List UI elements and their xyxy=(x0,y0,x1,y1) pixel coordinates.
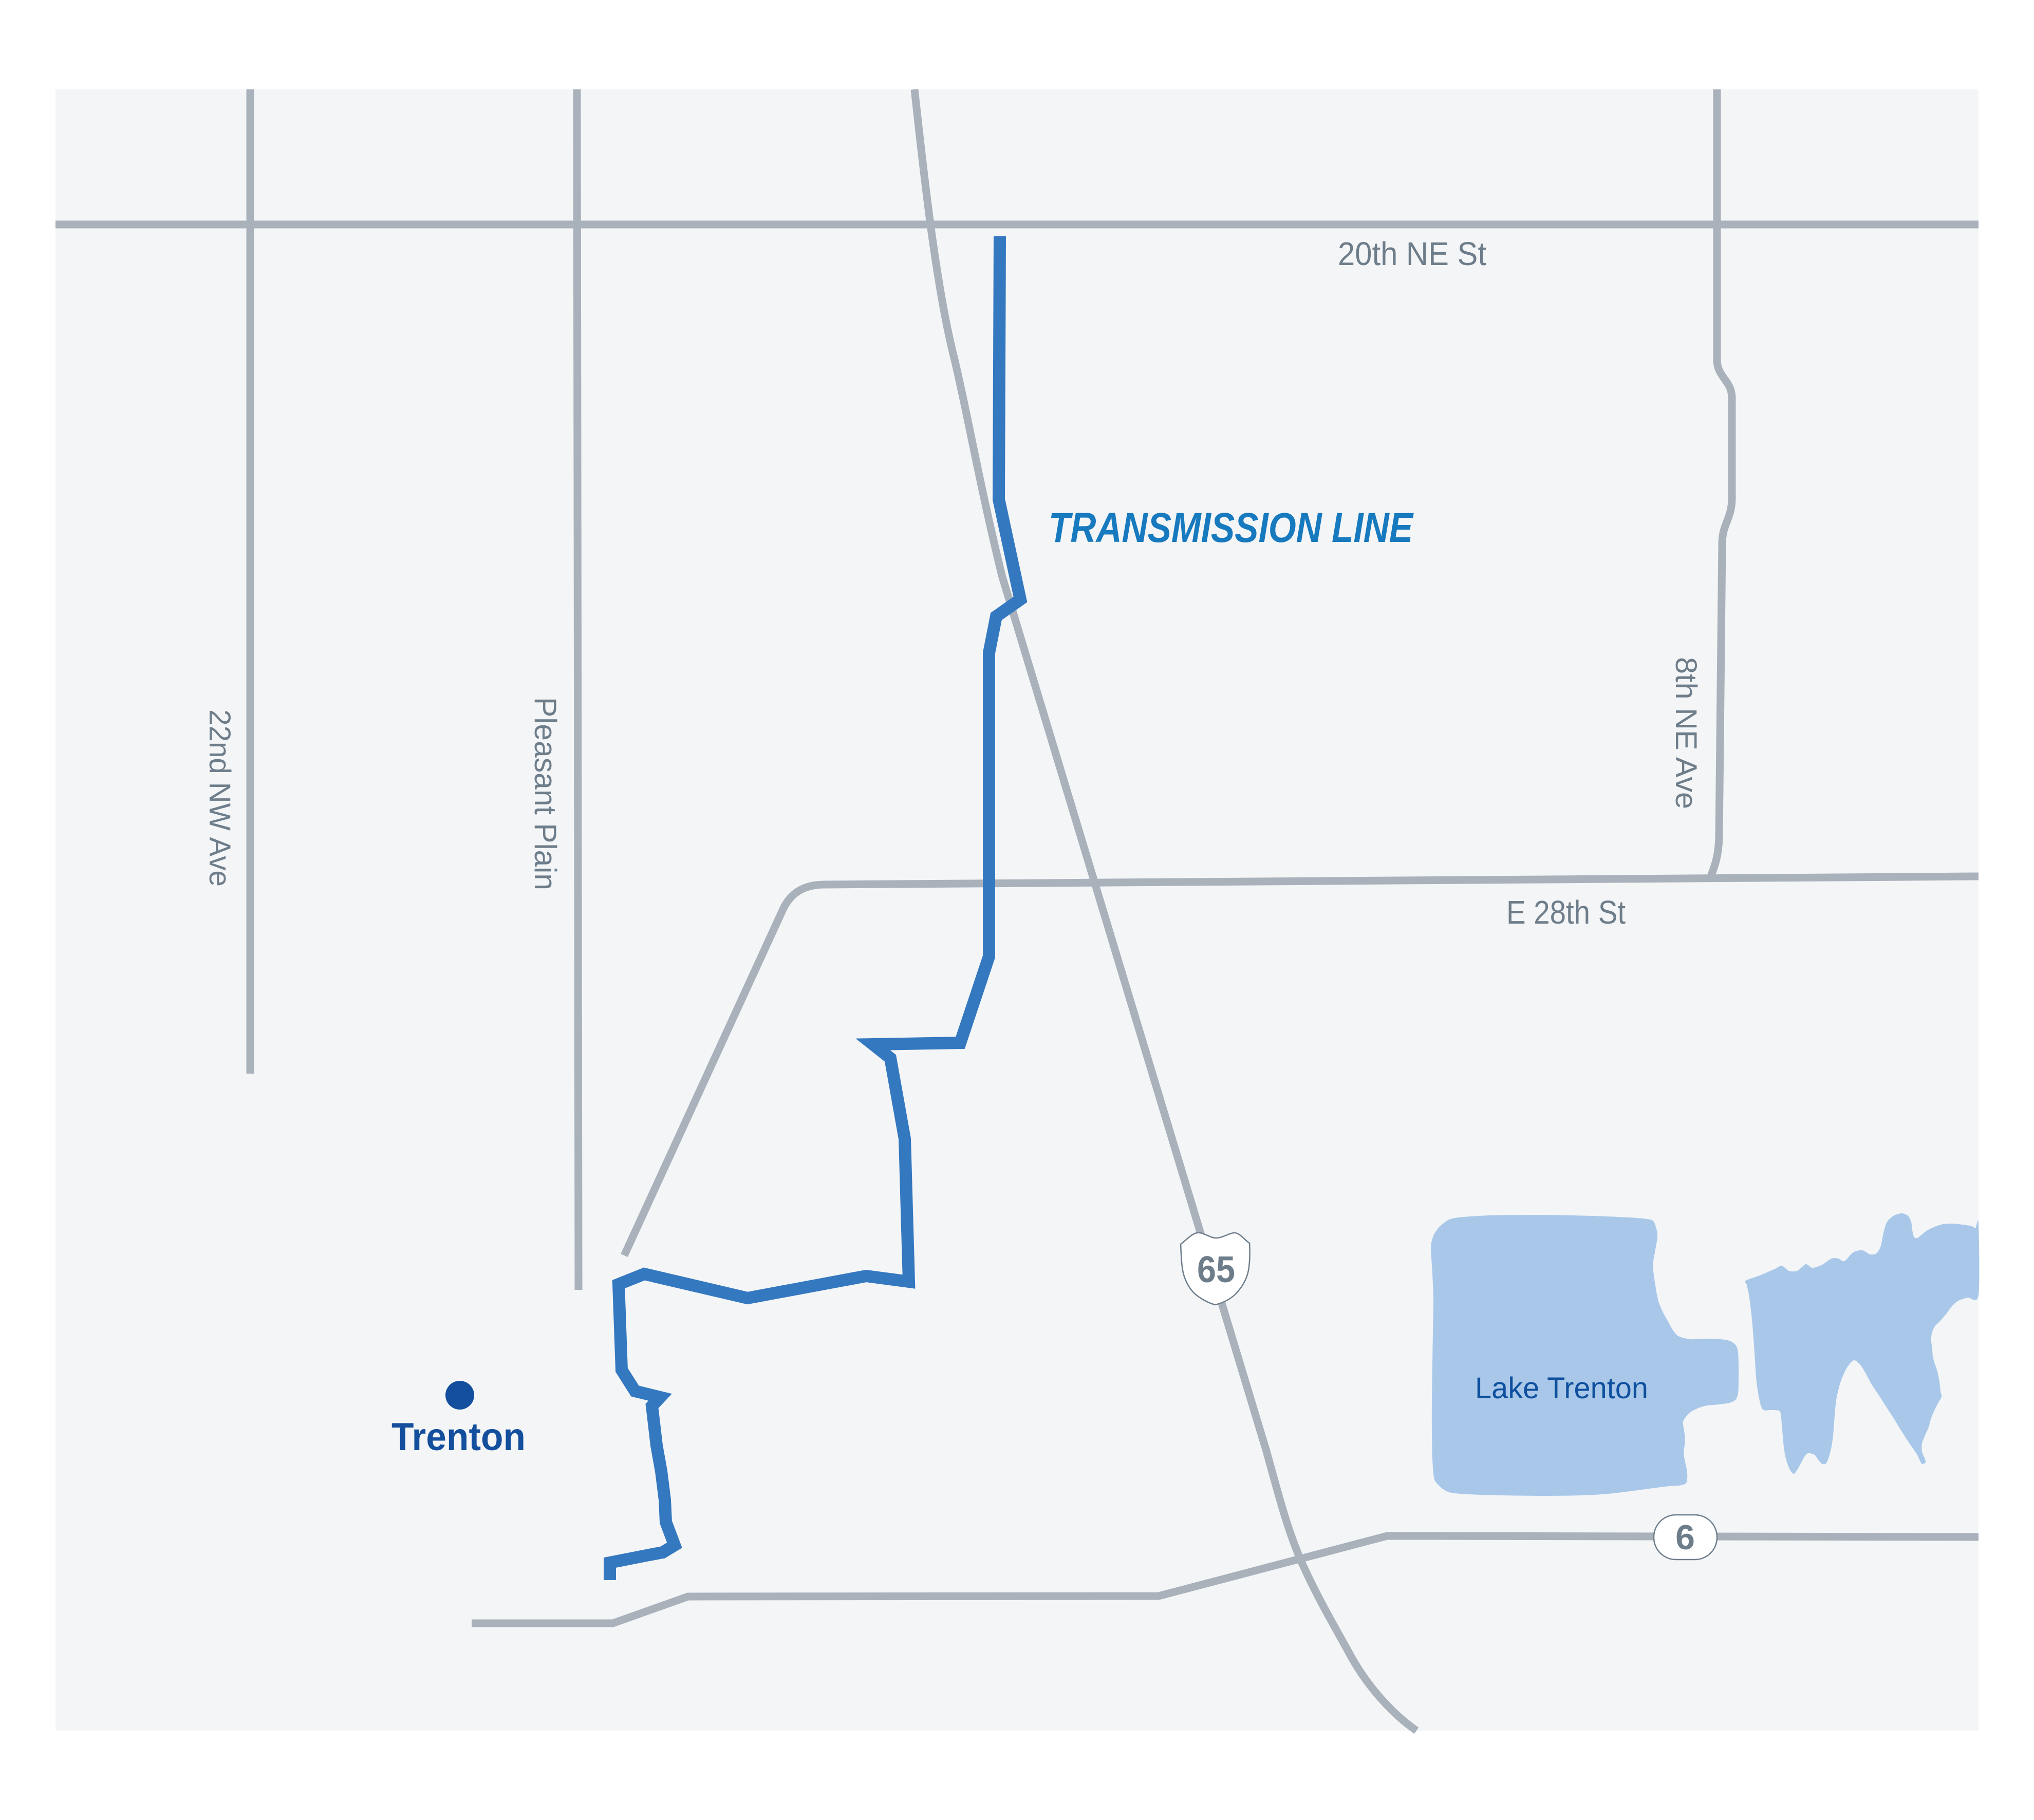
svg-text:65: 65 xyxy=(1197,1249,1235,1290)
svg-text:Trenton: Trenton xyxy=(391,1415,526,1459)
svg-text:Pleasant Plain: Pleasant Plain xyxy=(528,697,563,890)
svg-text:Lake Trenton: Lake Trenton xyxy=(1475,1372,1648,1405)
svg-text:E 28th St: E 28th St xyxy=(1506,894,1626,931)
svg-text:TRANSMISSION LINE: TRANSMISSION LINE xyxy=(1049,504,1414,551)
svg-text:8th NE Ave: 8th NE Ave xyxy=(1669,657,1703,809)
svg-text:22nd NW Ave: 22nd NW Ave xyxy=(203,709,236,887)
svg-text:6: 6 xyxy=(1675,1518,1695,1557)
svg-text:20th NE St: 20th NE St xyxy=(1338,235,1486,272)
